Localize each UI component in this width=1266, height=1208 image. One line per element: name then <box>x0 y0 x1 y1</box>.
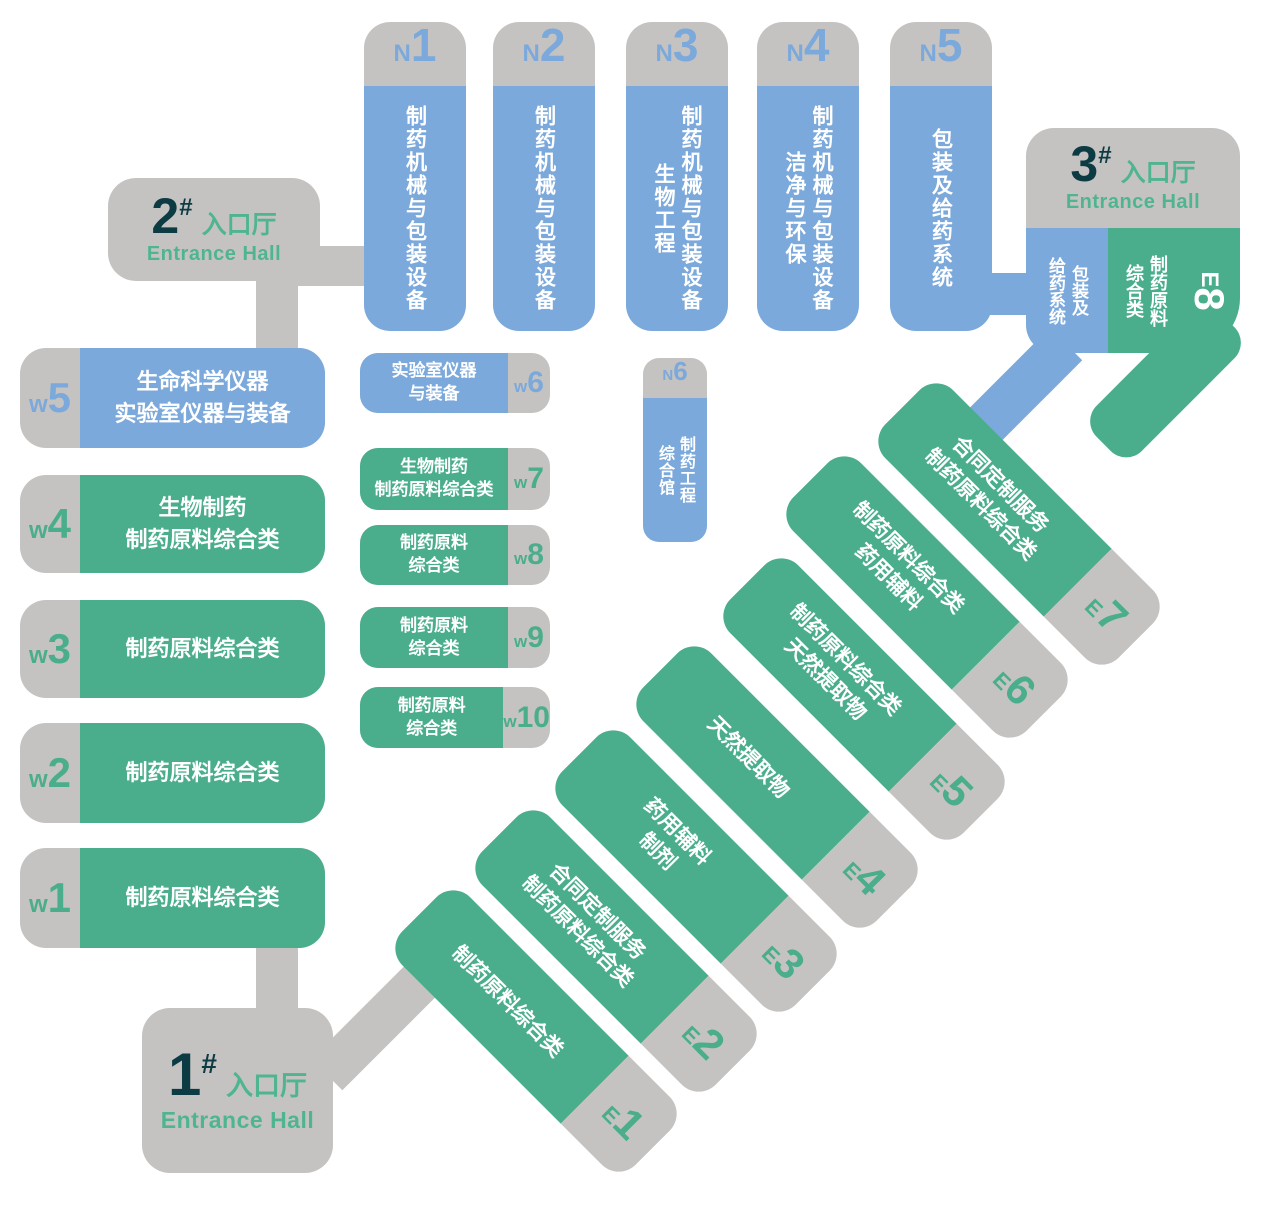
hall-w5[interactable]: w 5 生命科学仪器 实验室仪器与装备 <box>20 348 325 448</box>
hall-w5-tag: w 5 <box>20 377 80 419</box>
hall-w8-tag: w 8 <box>508 540 550 570</box>
hall-n6-letter: N <box>662 367 673 384</box>
hall-w4-tag: w 4 <box>20 503 80 545</box>
hall-w2-number: 2 <box>48 752 71 794</box>
connector-entrance2-w5 <box>256 274 298 352</box>
hall-w3-number: 3 <box>48 628 71 670</box>
entrance-2-number: 2 <box>151 194 179 239</box>
hall-n5-body: 包装及给药系统 <box>890 86 992 331</box>
entrance-2-title: 2 # 入口厅 <box>151 194 276 241</box>
entrance-3-hash: # <box>1098 142 1111 170</box>
entrance-3-label-en: Entrance Hall <box>1066 191 1200 214</box>
hall-n2[interactable]: N 2 制药机械与包装设备 <box>493 22 595 331</box>
hall-n4-number: 4 <box>804 22 830 68</box>
hall-w5-letter: w <box>29 391 48 419</box>
hall-w7[interactable]: 生物制药 制药原料综合类 w 7 <box>360 448 550 510</box>
hall-n1-label: 制药机械与包装设备 <box>402 105 429 312</box>
hall-w7-tag: w 7 <box>508 464 550 494</box>
hall-w6[interactable]: 实验室仪器 与装备 w 6 <box>360 353 550 413</box>
hall-e8-block[interactable]: 3 # 入口厅 Entrance Hall 包装及 给药系统 制药原料 综合类 … <box>1026 128 1240 353</box>
hall-w3-label: 制药原料综合类 <box>80 600 325 698</box>
hall-n6[interactable]: N 6 制药工程 综合馆 <box>643 358 707 542</box>
hall-w3[interactable]: w 3 制药原料综合类 <box>20 600 325 698</box>
hall-n2-tag: N 2 <box>493 22 595 86</box>
hall-w9-tag: w 9 <box>508 623 550 653</box>
hall-n3-letter: N <box>656 40 673 68</box>
hall-n3-number: 3 <box>673 22 699 68</box>
hall-w1-label: 制药原料综合类 <box>80 848 325 948</box>
hall-n3[interactable]: N 3 制药机械与包装设备 生物工程 <box>626 22 728 331</box>
hall-w9-letter: w <box>514 632 527 652</box>
entrance-3-label-zh: 入口厅 <box>1121 153 1196 189</box>
hall-n5[interactable]: N 5 包装及给药系统 <box>890 22 992 331</box>
hall-w4[interactable]: w 4 生物制药 制药原料综合类 <box>20 475 325 573</box>
hall-n5-label: 包装及给药系统 <box>928 128 955 289</box>
exhibition-floor-map: 2 # 入口厅 Entrance Hall 1 # 入口厅 Entrance H… <box>0 0 1266 1208</box>
hall-n2-body: 制药机械与包装设备 <box>493 86 595 331</box>
hall-n1-letter: N <box>394 40 411 68</box>
hall-n4-body: 制药机械与包装设备 洁净与环保 <box>757 86 859 331</box>
hall-w9-label: 制药原料 综合类 <box>360 607 508 668</box>
hall-e8-label: 制药原料 综合类 <box>1122 255 1170 327</box>
hall-w6-tag: w 6 <box>508 368 550 398</box>
hall-n4-letter: N <box>787 40 804 68</box>
hall-n1[interactable]: N 1 制药机械与包装设备 <box>364 22 466 331</box>
hall-w10-number: 10 <box>517 703 550 733</box>
hall-w7-number: 7 <box>527 464 544 494</box>
entrance-2-label-en: Entrance Hall <box>147 243 281 266</box>
hall-w2[interactable]: w 2 制药原料综合类 <box>20 723 325 823</box>
hall-w4-letter: w <box>29 517 48 545</box>
hall-w6-letter: w <box>514 377 527 397</box>
hall-w8-number: 8 <box>527 540 544 570</box>
hall-w4-label: 生物制药 制药原料综合类 <box>80 475 325 573</box>
hall-w1-letter: w <box>29 891 48 919</box>
hall-w3-letter: w <box>29 642 48 670</box>
entrance-hall-2[interactable]: 2 # 入口厅 Entrance Hall <box>108 178 320 281</box>
hall-n4[interactable]: N 4 制药机械与包装设备 洁净与环保 <box>757 22 859 331</box>
entrance-3-number: 3 <box>1070 142 1098 187</box>
hall-w2-label: 制药原料综合类 <box>80 723 325 823</box>
entrance-1-hash: # <box>201 1048 217 1080</box>
hall-w6-number: 6 <box>527 368 544 398</box>
hall-w1-number: 1 <box>48 877 71 919</box>
entrance-2-label-zh: 入口厅 <box>202 205 277 241</box>
hall-w9-number: 9 <box>527 623 544 653</box>
hall-w10-label: 制药原料 综合类 <box>360 687 503 748</box>
hall-w10-letter: w <box>503 712 516 732</box>
hall-n5-tag: N 5 <box>890 22 992 86</box>
hall-e8-number: 8 <box>1186 287 1233 310</box>
hall-n3-label: 制药机械与包装设备 生物工程 <box>650 105 704 312</box>
hall-n5-number: 5 <box>937 22 963 68</box>
hall-w2-tag: w 2 <box>20 752 80 794</box>
hall-n5-letter: N <box>920 40 937 68</box>
hall-w1[interactable]: w 1 制药原料综合类 <box>20 848 325 948</box>
hall-e8-packaging-zone: 包装及 给药系统 <box>1026 228 1108 353</box>
hall-w8[interactable]: 制药原料 综合类 w 8 <box>360 525 550 585</box>
hall-n1-number: 1 <box>411 22 437 68</box>
hall-w7-label: 生物制药 制药原料综合类 <box>360 448 508 510</box>
entrance-1-label-en: Entrance Hall <box>161 1107 315 1134</box>
hall-w5-label: 生命科学仪器 实验室仪器与装备 <box>80 348 325 448</box>
hall-n6-number: 6 <box>673 358 687 384</box>
hall-w9[interactable]: 制药原料 综合类 w 9 <box>360 607 550 668</box>
hall-n4-label: 制药机械与包装设备 洁净与环保 <box>781 105 835 312</box>
hall-n2-number: 2 <box>540 22 566 68</box>
hall-w4-number: 4 <box>48 503 71 545</box>
hall-w8-letter: w <box>514 549 527 569</box>
hall-n1-tag: N 1 <box>364 22 466 86</box>
entrance-1-label-zh: 入口厅 <box>226 1064 307 1103</box>
entrance-hall-1[interactable]: 1 # 入口厅 Entrance Hall <box>142 1008 333 1173</box>
hall-w1-tag: w 1 <box>20 877 80 919</box>
entrance-2-hash: # <box>179 194 192 222</box>
hall-w10[interactable]: 制药原料 综合类 w 10 <box>360 687 550 748</box>
entrance-1-title: 1 # 入口厅 <box>168 1048 307 1103</box>
entrance-hall-3[interactable]: 3 # 入口厅 Entrance Hall <box>1026 128 1240 228</box>
hall-n6-tag: N 6 <box>643 358 707 398</box>
hall-w2-letter: w <box>29 766 48 794</box>
hall-w6-label: 实验室仪器 与装备 <box>360 353 508 413</box>
entrance-3-title: 3 # 入口厅 <box>1070 142 1195 189</box>
hall-w8-label: 制药原料 综合类 <box>360 525 508 585</box>
connector-w1-entrance1 <box>256 944 298 1012</box>
hall-n2-label: 制药机械与包装设备 <box>531 105 558 312</box>
hall-w10-tag: w 10 <box>503 703 550 733</box>
hall-n2-letter: N <box>523 40 540 68</box>
hall-n3-body: 制药机械与包装设备 生物工程 <box>626 86 728 331</box>
hall-e8-main-zone: 制药原料 综合类 E8 <box>1108 228 1240 353</box>
hall-e8-letter: E <box>1196 271 1223 287</box>
hall-e8-tag: E8 <box>1188 271 1230 310</box>
entrance-1-number: 1 <box>168 1048 201 1102</box>
hall-n6-label: 制药工程 综合馆 <box>654 436 696 504</box>
hall-n1-body: 制药机械与包装设备 <box>364 86 466 331</box>
hall-n6-body: 制药工程 综合馆 <box>643 398 707 542</box>
hall-e8-packaging-label: 包装及 给药系统 <box>1044 257 1090 325</box>
hall-n3-tag: N 3 <box>626 22 728 86</box>
hall-n4-tag: N 4 <box>757 22 859 86</box>
hall-w3-tag: w 3 <box>20 628 80 670</box>
hall-w7-letter: w <box>514 473 527 493</box>
hall-w5-number: 5 <box>48 377 71 419</box>
